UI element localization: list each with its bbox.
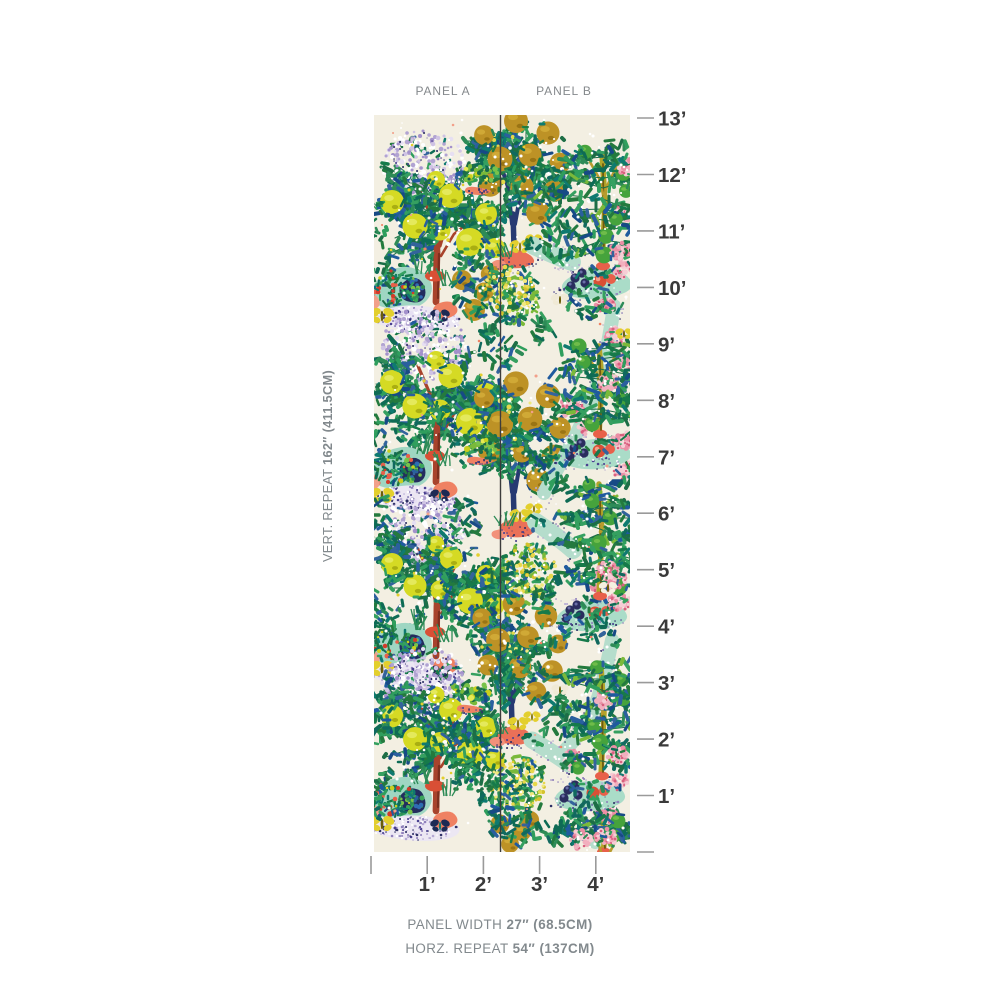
svg-text:7’: 7’ bbox=[658, 446, 675, 469]
svg-text:5’: 5’ bbox=[658, 559, 675, 582]
svg-text:3’: 3’ bbox=[658, 672, 675, 695]
svg-text:10’: 10’ bbox=[658, 277, 687, 300]
svg-text:6’: 6’ bbox=[658, 503, 675, 526]
svg-text:1’: 1’ bbox=[419, 873, 436, 896]
svg-text:9’: 9’ bbox=[658, 333, 675, 356]
svg-text:8’: 8’ bbox=[658, 390, 675, 413]
svg-text:12’: 12’ bbox=[658, 164, 687, 187]
svg-text:HORZ. REPEAT 54″ (137CM): HORZ. REPEAT 54″ (137CM) bbox=[405, 941, 594, 956]
svg-text:11’: 11’ bbox=[658, 220, 685, 243]
svg-text:4’: 4’ bbox=[658, 616, 675, 639]
svg-text:PANEL B: PANEL B bbox=[536, 84, 592, 98]
svg-text:2’: 2’ bbox=[658, 729, 675, 752]
svg-text:VERT. REPEAT 162″ (411.5CM): VERT. REPEAT 162″ (411.5CM) bbox=[320, 370, 335, 562]
svg-text:PANEL A: PANEL A bbox=[416, 84, 471, 98]
svg-text:13’: 13’ bbox=[658, 108, 687, 131]
svg-text:4’: 4’ bbox=[587, 873, 604, 896]
svg-text:1’: 1’ bbox=[658, 785, 675, 808]
svg-text:PANEL WIDTH 27″ (68.5CM): PANEL WIDTH 27″ (68.5CM) bbox=[407, 917, 592, 932]
svg-text:2’: 2’ bbox=[475, 873, 492, 896]
svg-text:3’: 3’ bbox=[531, 873, 548, 896]
